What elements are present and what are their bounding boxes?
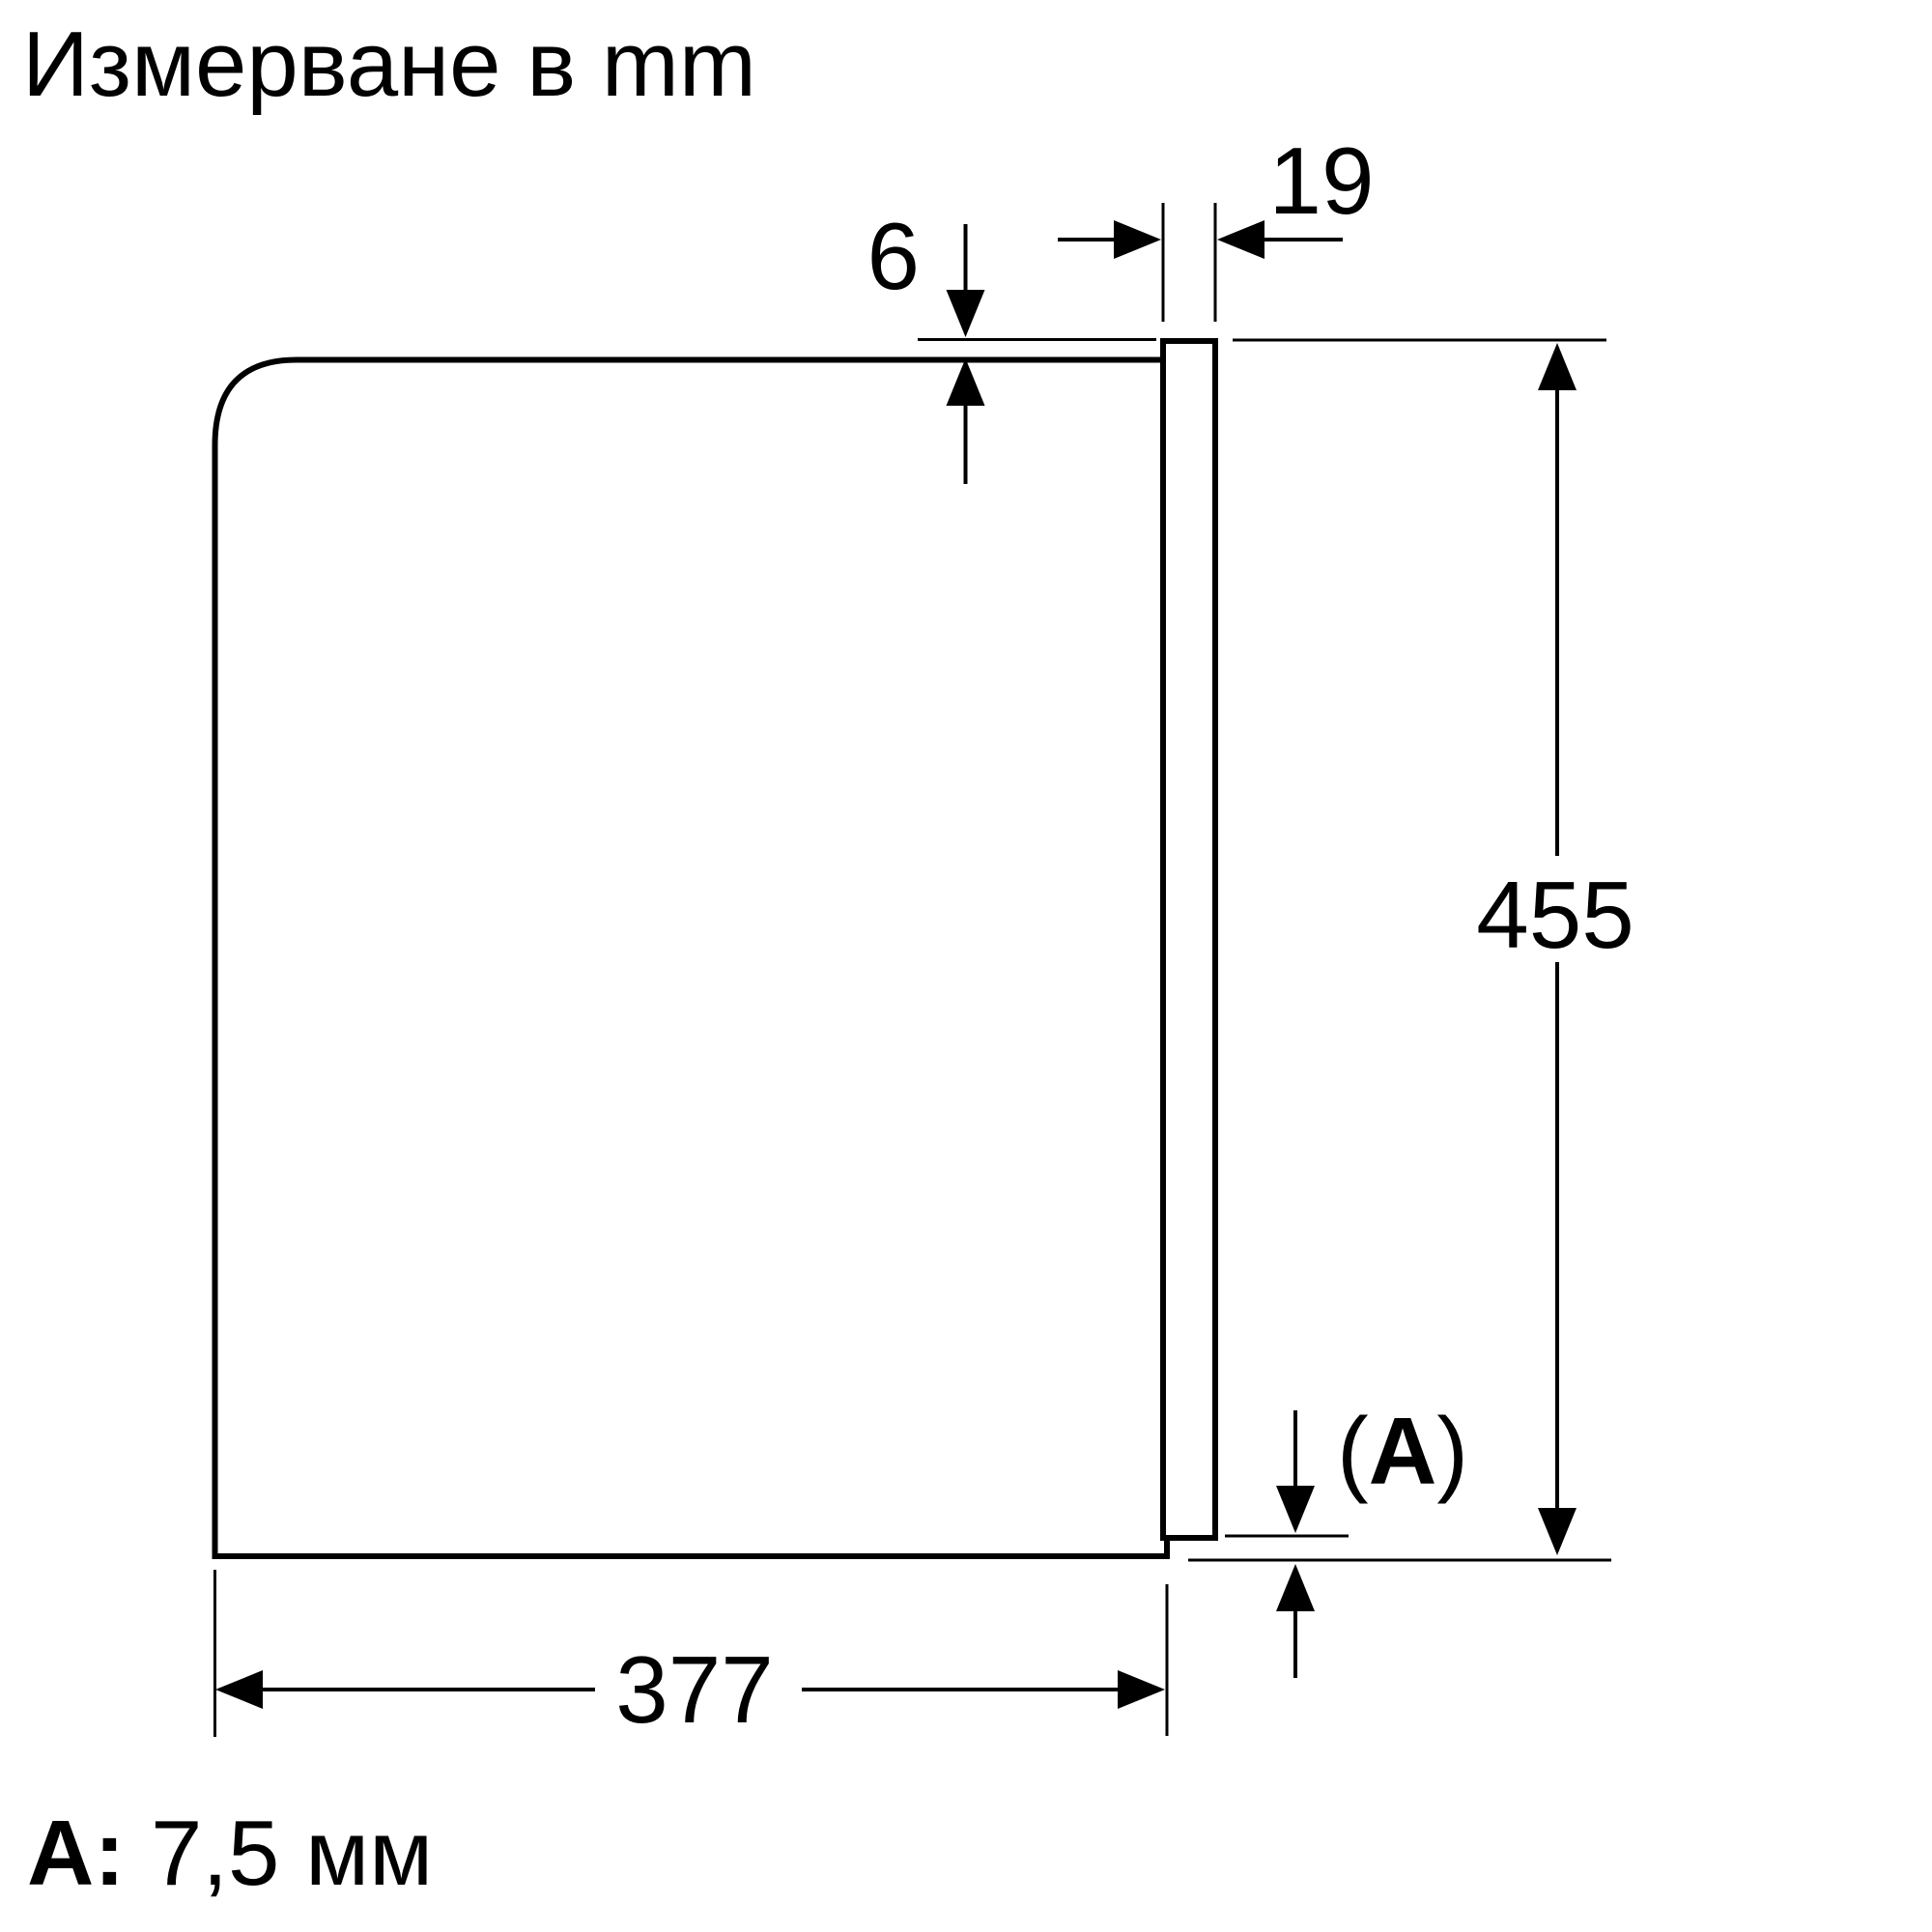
svg-text:A: 7,5 мм: A: 7,5 мм (27, 1802, 433, 1905)
svg-text:455: 455 (1476, 862, 1634, 968)
svg-text:6: 6 (867, 203, 920, 309)
svg-text:19: 19 (1268, 128, 1374, 234)
svg-text:377: 377 (615, 1636, 774, 1743)
svg-text:(A): (A) (1337, 1398, 1468, 1504)
svg-text:Измерване в mm: Измерване в mm (22, 13, 756, 116)
